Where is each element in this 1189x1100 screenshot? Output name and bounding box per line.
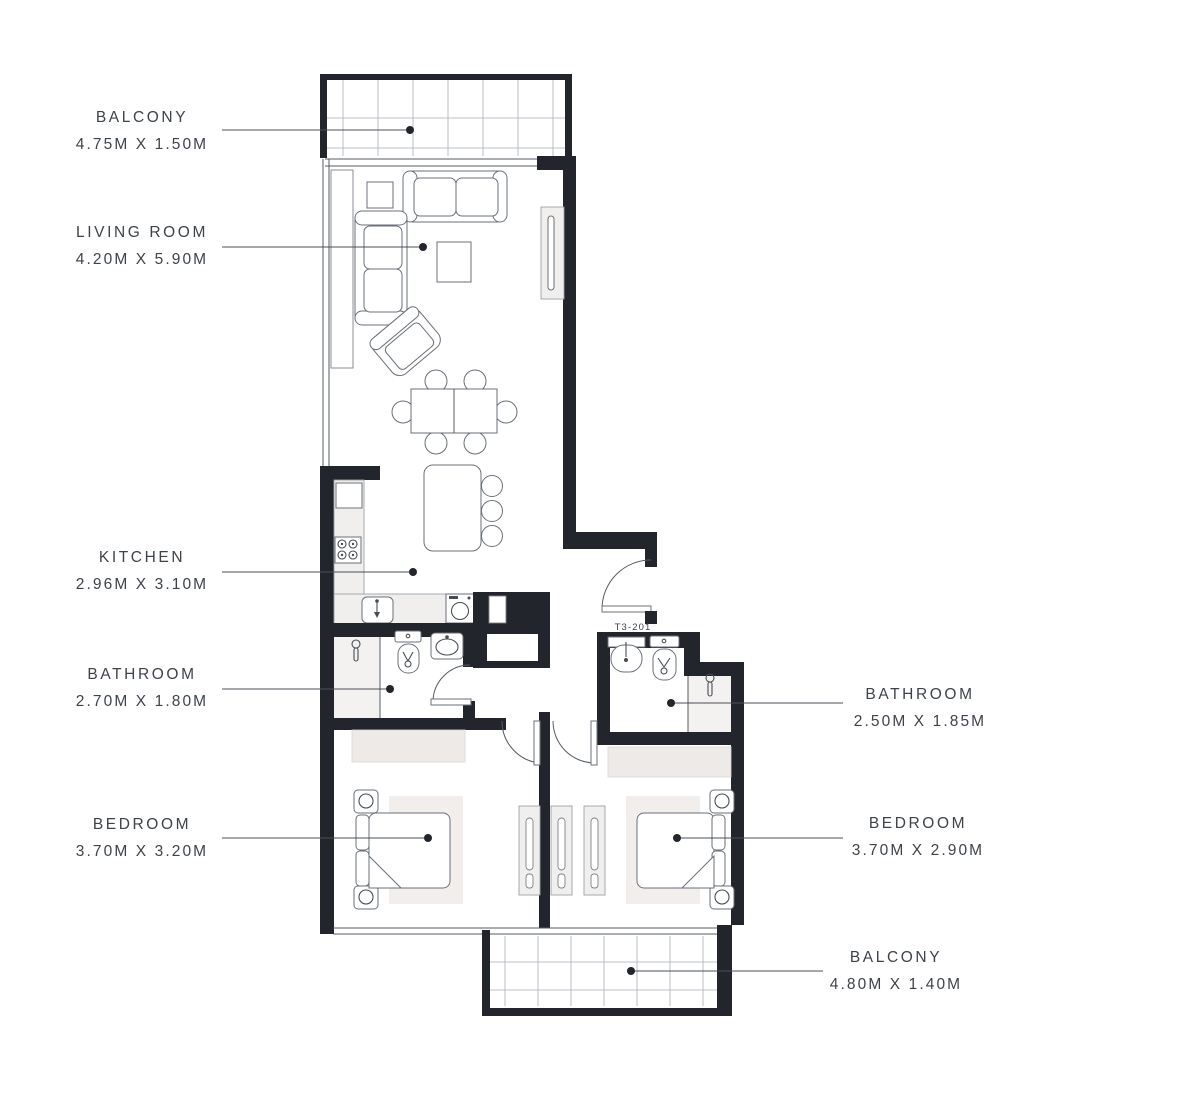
fridge xyxy=(336,483,362,508)
dining-chair xyxy=(425,432,447,454)
entry-door-leaf xyxy=(602,606,651,612)
door-swing xyxy=(433,665,470,702)
shower-area xyxy=(688,676,731,732)
room-label: BALCONY xyxy=(96,109,188,126)
door-leaf xyxy=(431,699,471,705)
wall xyxy=(482,1008,732,1016)
wall xyxy=(482,930,490,1016)
room-label: BEDROOM xyxy=(869,815,967,832)
stool xyxy=(482,526,503,547)
door-leaf xyxy=(591,721,597,765)
sofa-top xyxy=(403,171,507,222)
balcony-bottom-callout: BALCONY 4.80M X 1.40M xyxy=(627,949,962,993)
tv-icon xyxy=(548,216,554,290)
room-dims: 2.96M X 3.10M xyxy=(76,576,208,593)
shaft xyxy=(489,596,506,623)
washing-machine-icon xyxy=(446,594,474,623)
room-dims: 4.80M X 1.40M xyxy=(830,976,962,993)
door-swing xyxy=(553,721,594,763)
tv-unit xyxy=(541,207,564,299)
wardrobe xyxy=(352,730,465,762)
room-dims: 4.20M X 5.90M xyxy=(76,251,208,268)
room-label: LIVING ROOM xyxy=(76,224,208,241)
wall xyxy=(463,637,475,667)
closet-niche xyxy=(487,634,538,661)
closet xyxy=(584,806,605,895)
room-dims: 3.70M X 3.20M xyxy=(76,843,208,860)
wall xyxy=(565,74,572,158)
side-table xyxy=(367,182,393,208)
wall xyxy=(563,156,576,546)
room-label: BATHROOM xyxy=(865,686,974,703)
dining-chair xyxy=(464,432,486,454)
wall xyxy=(320,74,327,158)
wall xyxy=(645,549,657,567)
floor-plan: T3-201 xyxy=(0,0,1189,1100)
room-dims: 3.70M X 2.90M xyxy=(852,842,984,859)
shower-area xyxy=(334,637,380,718)
wall xyxy=(320,74,572,80)
window-sill xyxy=(333,928,718,934)
hallway xyxy=(473,592,550,668)
room-label: KITCHEN xyxy=(99,549,185,566)
bedroom-2 xyxy=(608,747,734,909)
dining-chair xyxy=(495,401,517,423)
wall xyxy=(539,712,550,928)
coffee-table xyxy=(437,242,471,282)
sink-icon xyxy=(608,637,645,672)
unit-number-label: T3-201 xyxy=(615,622,652,633)
closet xyxy=(551,806,572,895)
room-label: BEDROOM xyxy=(93,816,191,833)
sofa-left xyxy=(355,211,407,325)
balcony-top-tile-grid xyxy=(327,80,565,156)
window-wall xyxy=(323,159,329,468)
wall xyxy=(320,718,506,730)
headboard-cushion xyxy=(356,851,369,886)
stool xyxy=(482,476,503,497)
kitchen-callout: KITCHEN 2.96M X 3.10M xyxy=(76,549,417,593)
closet xyxy=(519,806,540,895)
wardrobe xyxy=(608,747,731,777)
bedroom-1 xyxy=(352,730,465,909)
room-dims: 4.75M X 1.50M xyxy=(76,136,208,153)
toilet-icon xyxy=(650,636,679,680)
wall xyxy=(320,466,334,934)
room-dims: 2.70M X 1.80M xyxy=(76,693,208,710)
wall xyxy=(563,532,657,549)
balcony-top xyxy=(320,74,575,170)
kitchen-sink-icon xyxy=(362,597,393,623)
kitchen-island xyxy=(424,465,503,551)
room-label: BALCONY xyxy=(850,949,942,966)
room-dims: 2.50M X 1.85M xyxy=(854,713,986,730)
window-sill xyxy=(325,159,563,166)
wall xyxy=(597,632,610,745)
dining-set xyxy=(392,370,517,454)
entry-door-swing xyxy=(602,560,651,609)
headboard-cushion xyxy=(356,815,369,850)
balcony-top-callout: BALCONY 4.75M X 1.50M xyxy=(76,109,414,153)
wall xyxy=(597,732,744,745)
door-leaf xyxy=(534,721,540,765)
headboard-cushion xyxy=(712,815,725,850)
bedroom-corridor xyxy=(502,712,605,928)
room-label: BATHROOM xyxy=(87,666,196,683)
entrance: T3-201 xyxy=(563,532,657,633)
toilet-icon xyxy=(395,631,421,673)
console-shelf xyxy=(331,170,353,368)
stool xyxy=(482,501,503,522)
stove-icon xyxy=(335,537,361,563)
sink-icon xyxy=(431,633,463,659)
